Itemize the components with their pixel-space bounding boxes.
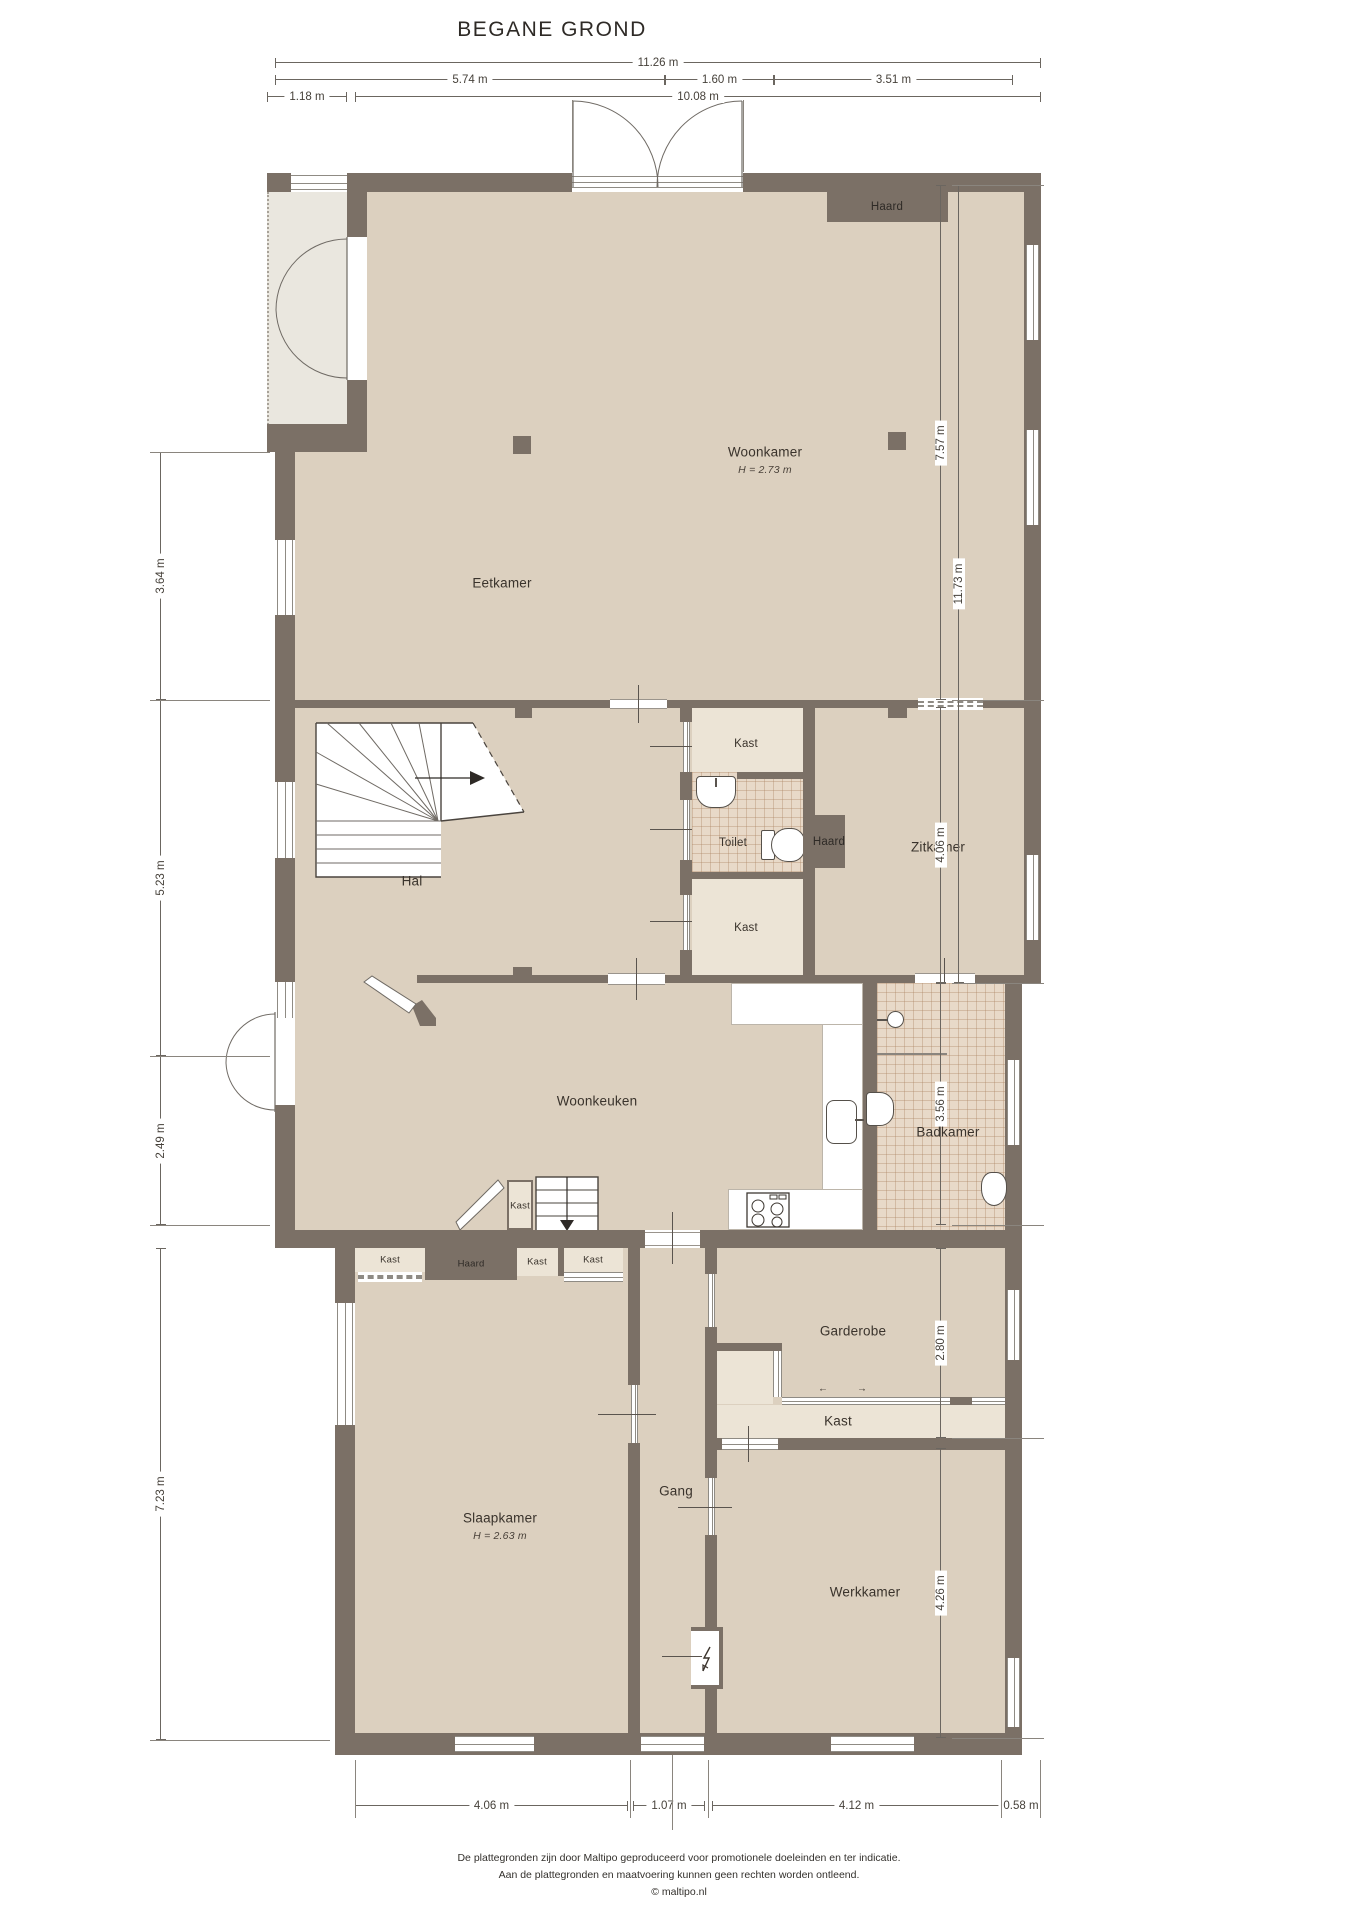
column — [513, 436, 531, 454]
floorplan-page: BEGANE GROND Haard — [0, 0, 1358, 1920]
wall — [628, 1443, 640, 1738]
shower-head-icon — [887, 1011, 904, 1028]
extension-line — [150, 700, 270, 701]
wall — [680, 975, 823, 983]
room-label-woonkeuken: Woonkeuken — [557, 1094, 638, 1109]
dimension-label: 3.56 m — [935, 1081, 947, 1126]
stove-icon — [746, 1192, 790, 1228]
dimension-line: 10.08 m — [355, 96, 1041, 97]
sliding-door — [358, 1272, 422, 1282]
window — [1007, 1060, 1020, 1145]
dimension-line: 5.23 m — [160, 700, 161, 1056]
wall — [347, 192, 367, 237]
dimension-line: 4.26 m — [940, 1448, 941, 1738]
room-label-kast: Kast — [380, 1255, 400, 1266]
window — [277, 982, 293, 1018]
room-label-haard-lw: Haard — [458, 1259, 485, 1270]
dimension-line: 1.18 m — [267, 96, 347, 97]
room-label-hal: Hal — [402, 874, 423, 889]
room-height-woonkamer: H = 2.73 m — [738, 464, 792, 476]
footer-disclaimer-line1: De plattegronden zijn door Maltipo gepro… — [457, 1852, 900, 1864]
wall — [267, 424, 367, 452]
extension-line — [630, 1760, 631, 1818]
side-door-opening — [275, 1018, 295, 1105]
room-label-kast-walkin: Kast — [824, 1414, 852, 1429]
extension-line — [952, 700, 1044, 701]
room-label-badkamer: Badkamer — [916, 1125, 979, 1140]
dimension-line: 7.57 m — [940, 185, 941, 700]
page-title: BEGANE GROND — [457, 18, 647, 42]
room-label-garderobe: Garderobe — [820, 1324, 886, 1339]
wall — [743, 173, 1041, 192]
dimension-line: 4.06 m — [940, 707, 941, 983]
wall — [692, 872, 803, 879]
extension-line — [1040, 1760, 1041, 1818]
dimension-line: 11.73 m — [958, 185, 959, 983]
room-label-kast: Kast — [734, 738, 758, 750]
wall — [335, 1248, 355, 1303]
wall — [275, 858, 295, 982]
wall-stub — [515, 708, 532, 718]
extension-line — [708, 1760, 709, 1818]
wall — [700, 1230, 1022, 1248]
lightning-icon — [701, 1646, 715, 1672]
room-label-kast: Kast — [734, 922, 758, 934]
dimension-label: 7.23 m — [155, 1471, 167, 1516]
double-door-swing-icon — [193, 1012, 275, 1112]
kitchen-counter — [731, 983, 863, 1025]
wall — [347, 173, 572, 192]
dimension-line: 4.06 m — [355, 1805, 628, 1806]
room-label-haard-top: Haard — [871, 201, 903, 213]
window — [1007, 1290, 1020, 1360]
window — [1026, 245, 1039, 340]
opening-tick — [662, 1656, 702, 1657]
interior-glass-panel — [683, 722, 690, 772]
window — [1026, 855, 1039, 940]
kitchen-sink — [826, 1100, 857, 1144]
double-door-swing-icon — [572, 95, 743, 187]
dimension-label: 1.60 m — [697, 74, 742, 86]
opening-tick — [748, 1426, 749, 1462]
dimension-label: 3.51 m — [871, 74, 916, 86]
window — [831, 1736, 914, 1752]
window — [277, 540, 293, 615]
toilet-bowl — [771, 828, 805, 862]
extension-line — [150, 1056, 270, 1057]
footer-copyright: © maltipo.nl — [651, 1886, 707, 1898]
room-label-kast: Kast — [510, 1201, 530, 1212]
wall — [295, 700, 610, 708]
window — [1007, 1658, 1020, 1727]
room-label-kast: Kast — [583, 1255, 603, 1266]
dimension-label: 2.80 m — [935, 1320, 947, 1365]
dimension-label: 1.07 m — [646, 1800, 691, 1812]
wall — [823, 975, 915, 983]
room-label-slaapkamer: Slaapkamer — [463, 1511, 537, 1526]
faucet-icon — [855, 1119, 864, 1121]
window — [1026, 430, 1039, 525]
window — [641, 1736, 704, 1752]
window — [337, 1303, 353, 1425]
window — [455, 1736, 534, 1752]
wall — [737, 772, 803, 779]
slide-arrow-icon: → — [857, 1384, 867, 1395]
dimension-line: 1.07 m — [633, 1805, 705, 1806]
opening-tick — [678, 1507, 732, 1508]
dimension-label: 11.73 m — [953, 559, 965, 610]
wall — [680, 860, 692, 895]
interior-glass-panel — [564, 1272, 623, 1282]
column — [888, 432, 906, 450]
dimension-line: 11.26 m — [275, 62, 1041, 63]
dimension-line: 3.64 m — [160, 452, 161, 700]
dimension-line: 2.80 m — [940, 1248, 941, 1438]
room-height-slaapkamer: H = 2.63 m — [473, 1530, 527, 1542]
dimension-label: 5.74 m — [447, 74, 492, 86]
room-label-gang: Gang — [659, 1484, 693, 1499]
dimension-label: 4.12 m — [834, 1800, 879, 1812]
slide-arrow-icon: ← — [818, 1384, 828, 1395]
double-door-swing-icon — [253, 237, 347, 380]
dimension-line: 0.58 m — [1001, 1805, 1041, 1806]
closet-floor — [717, 1351, 773, 1404]
window — [291, 175, 347, 190]
room-label-kast: Kast — [527, 1257, 547, 1268]
wall — [665, 975, 680, 983]
extension-line — [150, 1740, 330, 1741]
dimension-label: 7.57 m — [935, 420, 947, 465]
wall — [347, 380, 367, 424]
wall-stub — [513, 967, 532, 975]
dimension-label: 4.26 m — [935, 1570, 947, 1615]
extension-line — [572, 100, 573, 172]
diagonal-door-icon — [456, 1178, 508, 1232]
diagonal-door-icon — [362, 976, 436, 1026]
opening-tick — [598, 1414, 656, 1415]
wall — [275, 1230, 645, 1248]
wall — [950, 1397, 972, 1405]
dimension-label: 11.26 m — [633, 57, 684, 69]
wall — [417, 975, 608, 983]
room-label-eetkamer: Eetkamer — [472, 576, 531, 591]
footer-disclaimer-line2: Aan de plattegronden en maatvoering kunn… — [499, 1869, 860, 1881]
wall — [712, 1438, 722, 1450]
dimension-label: 2.49 m — [155, 1118, 167, 1163]
wall — [275, 452, 295, 540]
dimension-line: 5.74 m — [275, 79, 665, 80]
closet-floor — [717, 1405, 1005, 1438]
room-label-woonkamer: Woonkamer — [728, 445, 802, 460]
wall — [275, 615, 295, 782]
opening-tick — [638, 685, 639, 723]
wall-stub — [888, 708, 907, 718]
opening-tick — [672, 1212, 673, 1264]
dimension-label: 10.08 m — [672, 91, 724, 103]
window — [277, 782, 293, 858]
extension-line — [672, 1755, 673, 1830]
wall — [680, 772, 692, 800]
wall — [275, 1105, 295, 1248]
stairs-down-icon — [535, 1176, 599, 1232]
extension-line — [150, 1225, 270, 1226]
dimension-line: 2.49 m — [160, 1056, 161, 1225]
room-label-toilet: Toilet — [719, 837, 747, 849]
interior-glass-panel — [708, 1274, 715, 1327]
dimension-line: 1.60 m — [665, 79, 774, 80]
dimension-line: 7.23 m — [160, 1248, 161, 1740]
room-label-haard-mid: Haard — [813, 836, 845, 848]
dimension-label: 5.23 m — [155, 855, 167, 900]
wall — [667, 700, 918, 708]
interior-door-opening — [722, 1438, 778, 1450]
wall — [628, 1248, 640, 1385]
interior-glass-panel — [683, 800, 690, 860]
dimension-line: 3.51 m — [774, 79, 1013, 80]
wall — [335, 1425, 355, 1755]
wall — [712, 1343, 782, 1351]
wall — [680, 708, 692, 722]
dimension-label: 4.06 m — [935, 822, 947, 867]
extension-line — [952, 983, 1044, 984]
extension-line — [952, 185, 1044, 186]
extension-line — [1001, 1760, 1002, 1818]
faucet-icon — [715, 778, 717, 787]
shower-partition — [877, 1053, 947, 1055]
wall — [983, 700, 1024, 708]
wall — [267, 173, 291, 192]
winder-staircase-icon — [315, 722, 527, 878]
extension-line — [952, 1438, 1044, 1439]
room-label-werkkamer: Werkkamer — [830, 1585, 901, 1600]
opening-tick — [636, 958, 637, 1000]
extension-line — [952, 1225, 1044, 1226]
extension-line — [355, 1760, 356, 1818]
extension-line — [743, 100, 744, 172]
interior-glass-panel — [683, 895, 690, 950]
dimension-label: 1.18 m — [284, 91, 329, 103]
wall — [975, 975, 1024, 983]
dimension-label: 3.64 m — [155, 553, 167, 598]
dimension-line: 3.56 m — [940, 983, 941, 1225]
extension-line — [150, 452, 270, 453]
dimension-label: 4.06 m — [469, 1800, 514, 1812]
interior-glass-panel — [773, 1351, 782, 1397]
dimension-label: 0.58 m — [998, 1800, 1043, 1812]
toilet-bowl — [981, 1172, 1007, 1206]
porch-door-opening — [347, 237, 367, 380]
wall — [705, 1248, 717, 1274]
washbasin — [866, 1092, 894, 1126]
wall — [778, 1438, 1005, 1450]
extension-line — [952, 1738, 1044, 1739]
dimension-line: 4.12 m — [712, 1805, 1001, 1806]
